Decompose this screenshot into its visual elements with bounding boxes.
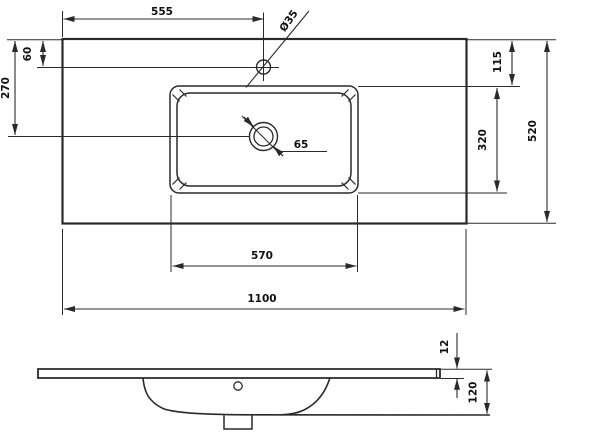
dim-label-basin-depth: 320 xyxy=(477,129,489,151)
bowl-profile-right xyxy=(281,378,330,415)
dim-555: 555 xyxy=(63,6,264,37)
faucet-hole: Ø35 xyxy=(37,8,309,88)
dim-label-drain-diameter: 65 xyxy=(294,139,309,151)
dim-label-slab-thickness: 12 xyxy=(439,340,451,355)
dim-label-total-height: 120 xyxy=(468,382,480,404)
dim-label-faucet-offset-y: 60 xyxy=(22,47,34,62)
dim-label-faucet-diameter: Ø35 xyxy=(277,8,300,34)
drain-hole: 65 xyxy=(8,116,327,156)
dim-270: 270 xyxy=(0,41,15,135)
basin-outer-rim xyxy=(170,86,358,193)
dim-115: 115 xyxy=(492,41,512,85)
technical-drawing-page: Ø35 65 555 60 270 xyxy=(0,0,600,440)
dim-label-drain-offset-y: 270 xyxy=(0,77,12,99)
dim-60: 60 xyxy=(22,41,43,66)
dim-label-total-depth: 520 xyxy=(527,120,539,142)
dim-120: 120 xyxy=(441,369,492,414)
dim-1100: 1100 xyxy=(63,229,467,315)
chamfer-line xyxy=(173,178,180,185)
drain-inner-circle xyxy=(254,127,273,146)
basin-corner-chamfers xyxy=(173,90,356,190)
drain-fitting-profile xyxy=(224,416,252,430)
basin-inner-rim xyxy=(177,93,351,186)
countertop-outline xyxy=(63,39,467,224)
drawing-svg: Ø35 65 555 60 270 xyxy=(0,0,600,440)
dim-12: 12 xyxy=(439,333,464,398)
dim-320: 320 xyxy=(477,88,497,192)
countertop-slab-profile xyxy=(38,369,440,378)
bowl-profile-left-and-bottom xyxy=(143,378,490,416)
basin xyxy=(170,86,358,193)
drain-diameter-arrow-upper xyxy=(244,117,254,127)
chamfer-line xyxy=(349,95,356,102)
top-view: Ø35 65 555 60 270 xyxy=(0,6,556,315)
chamfer-line xyxy=(349,178,356,185)
chamfer-line xyxy=(173,95,180,102)
side-view: 12 120 xyxy=(38,333,492,429)
dim-label-basin-width: 570 xyxy=(251,250,273,262)
faucet-diameter-leader xyxy=(246,11,309,88)
dim-label-basin-offset: 115 xyxy=(492,51,504,73)
dim-570: 570 xyxy=(171,195,358,272)
dim-label-total-width: 1100 xyxy=(247,293,276,305)
dim-label-faucet-offset-x: 555 xyxy=(151,6,173,18)
dim-520: 520 xyxy=(527,41,547,222)
overflow-hole xyxy=(234,382,242,390)
